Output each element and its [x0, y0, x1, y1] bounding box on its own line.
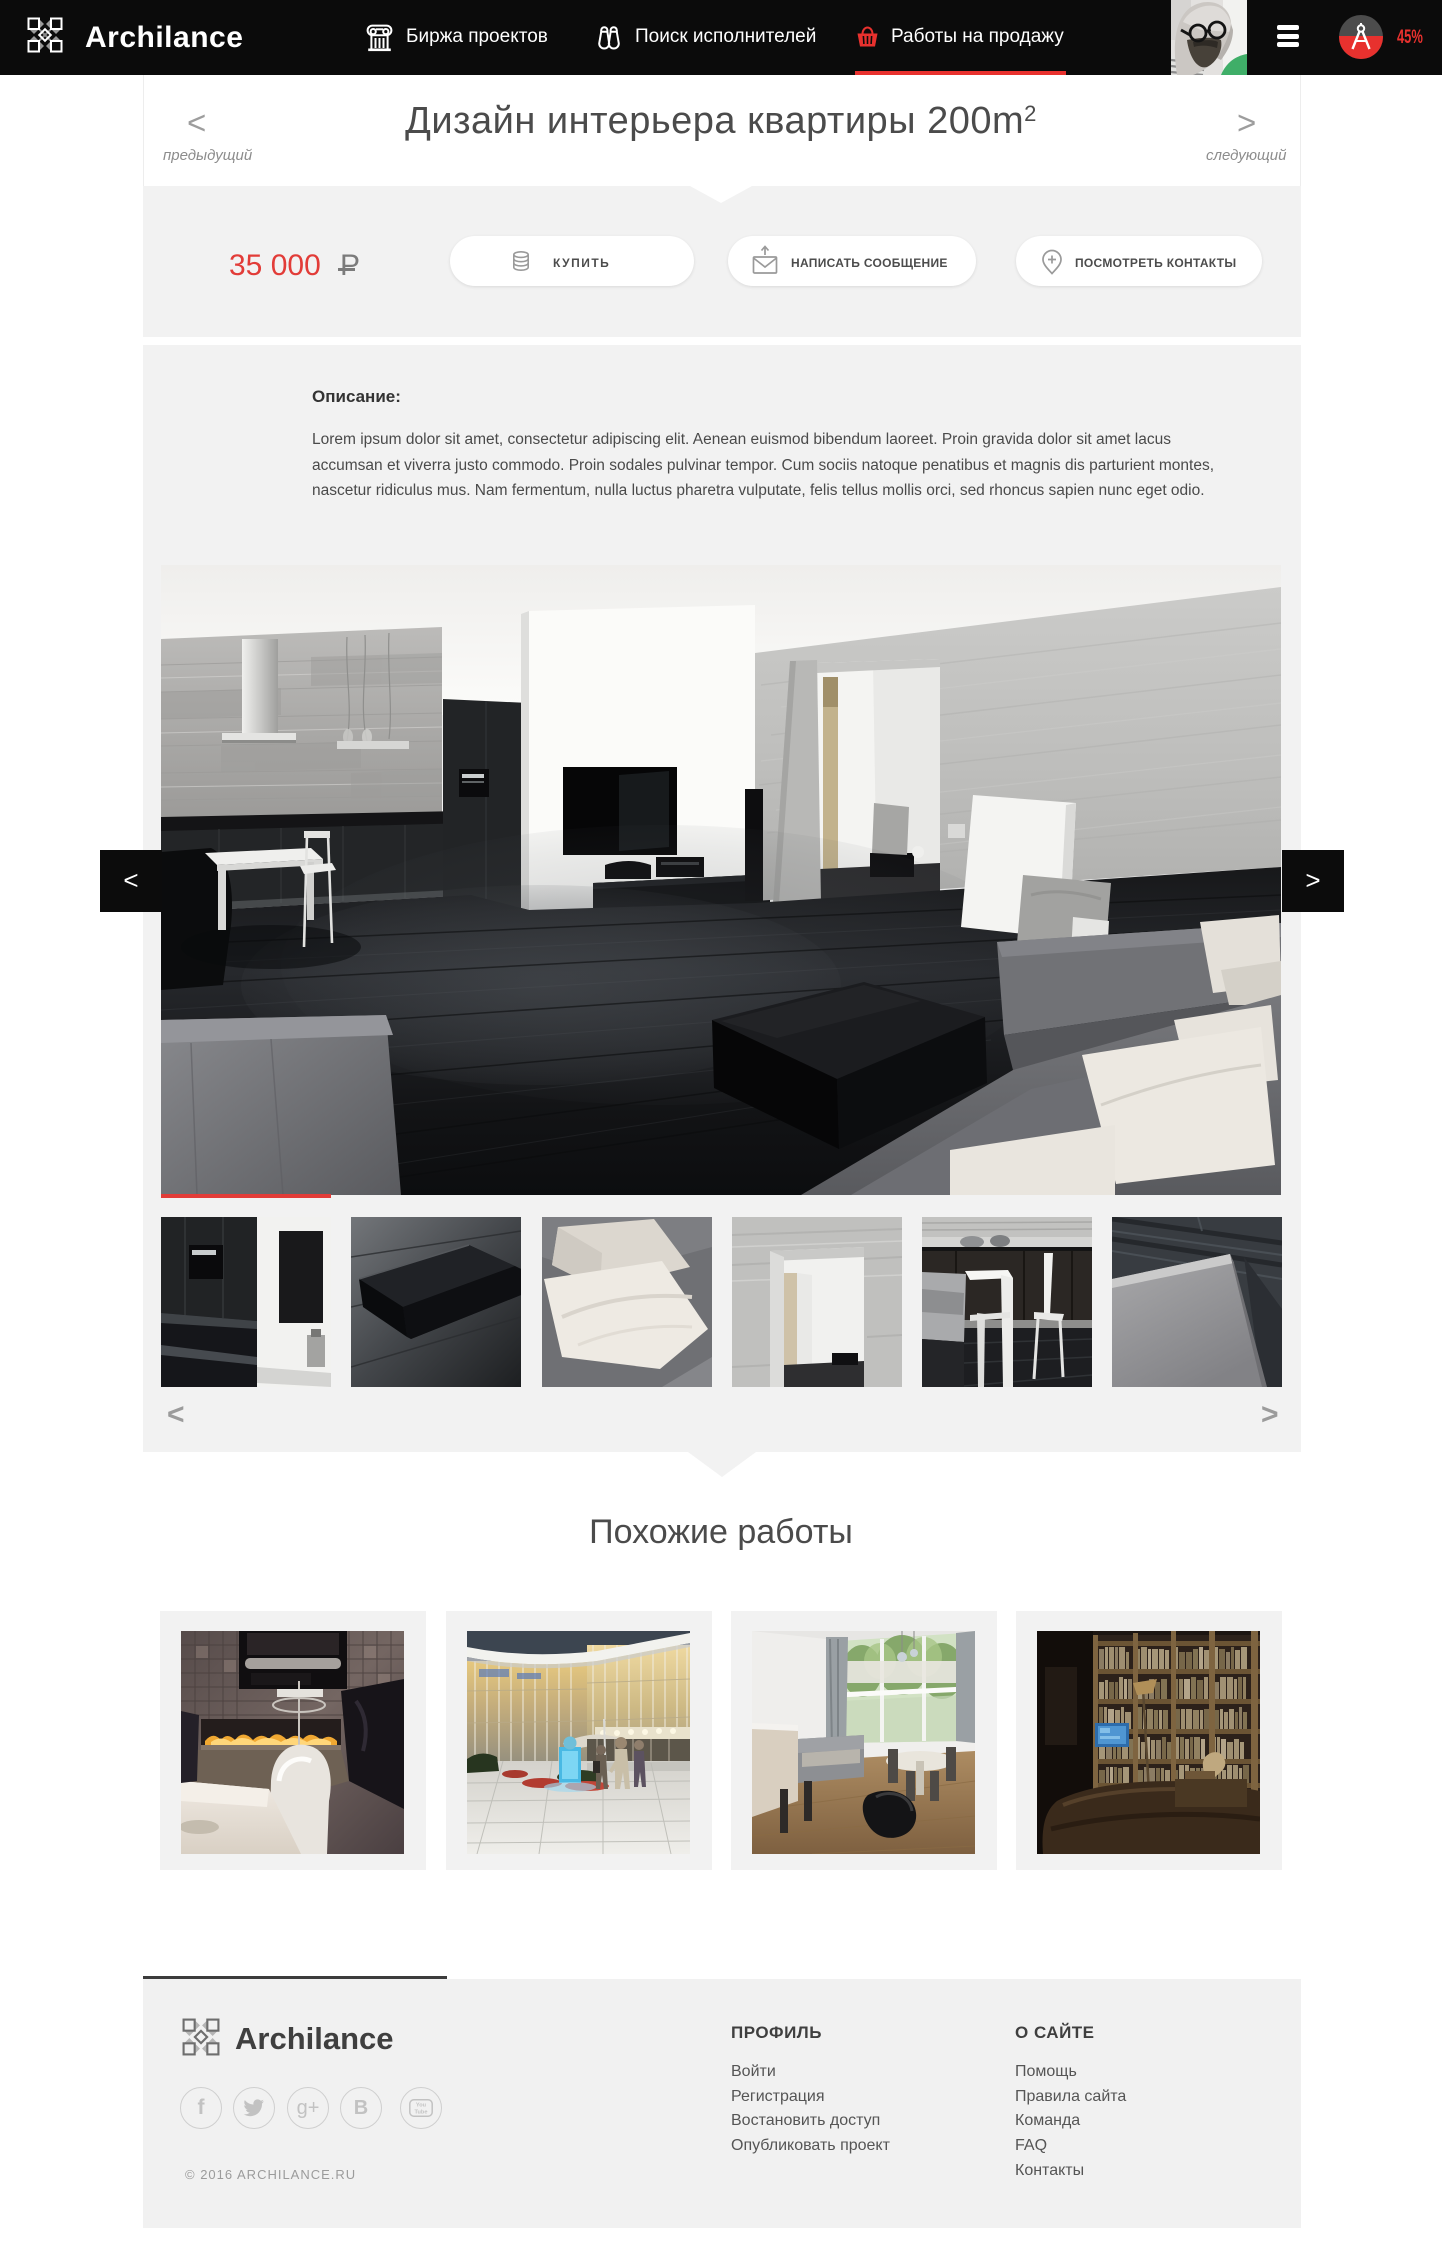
svg-text:You: You [416, 2103, 427, 2109]
svg-text:Tube: Tube [415, 2109, 428, 2115]
